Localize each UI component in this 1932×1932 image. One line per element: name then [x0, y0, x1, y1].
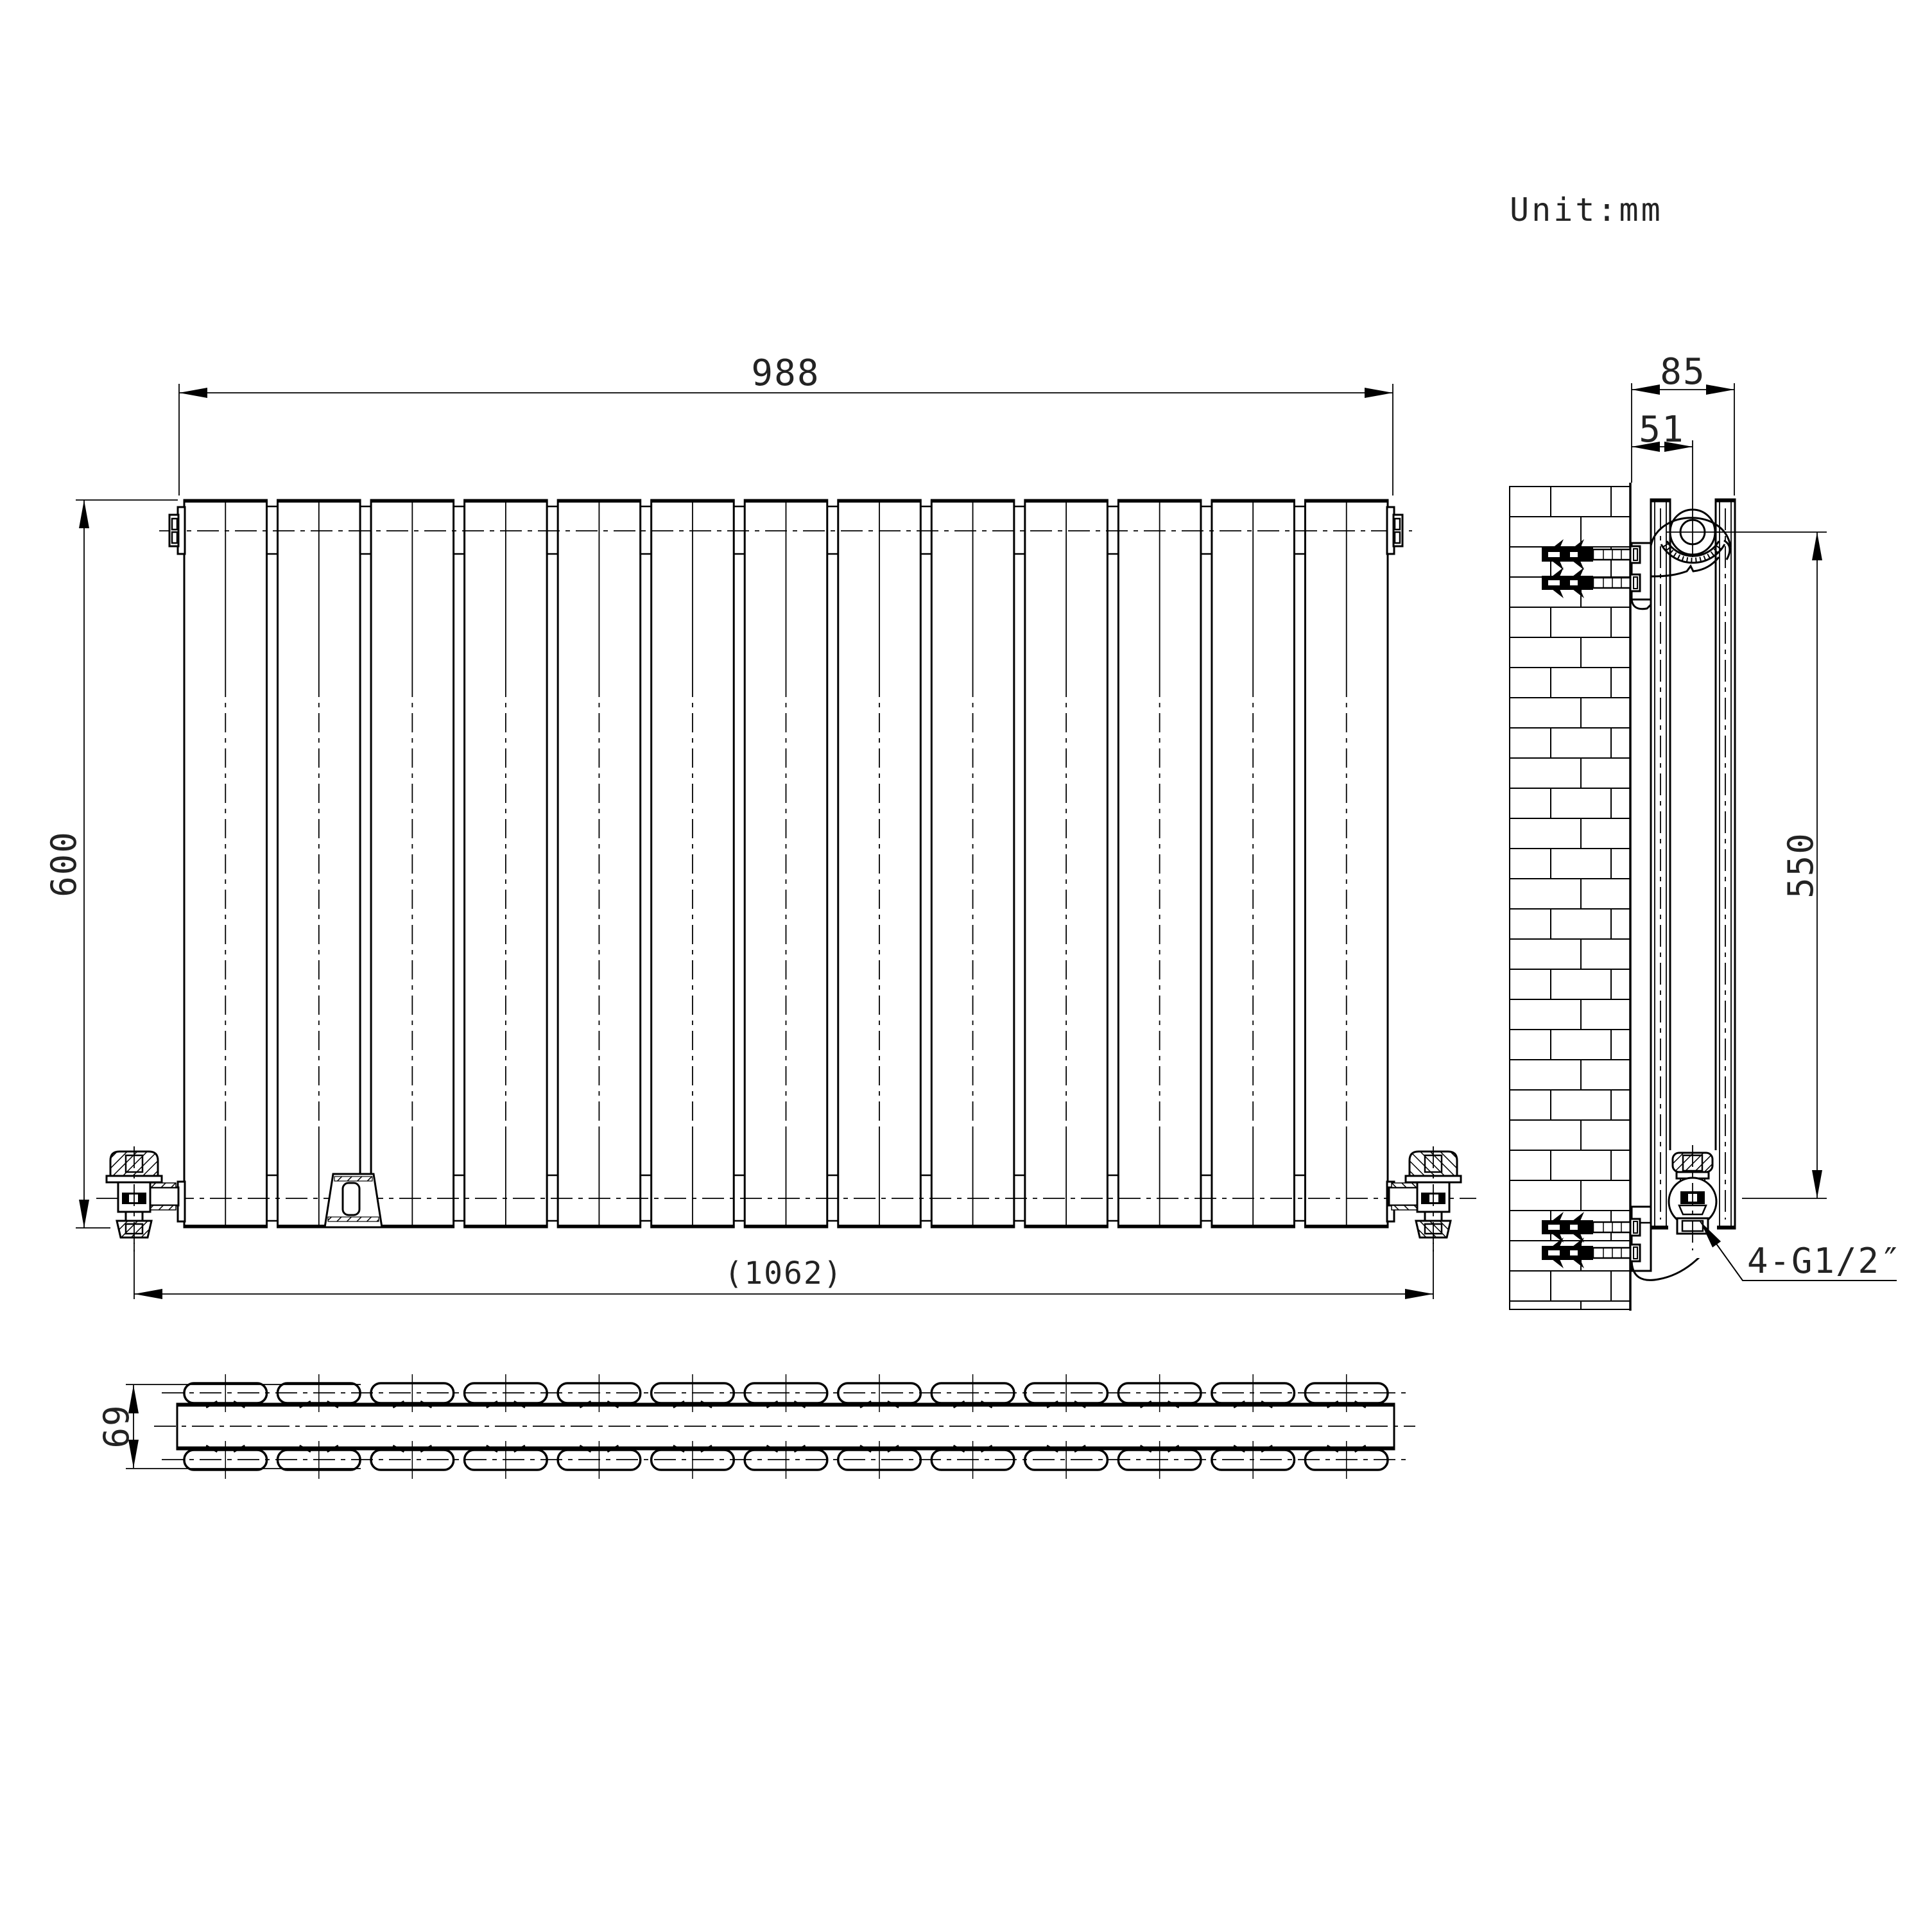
- brick-wall: [1510, 487, 1630, 1309]
- dim-width-label: 988: [751, 352, 820, 394]
- radiator-technical-drawing: 988 600 (1062) 85 51 550 69 4-G1/2″ Unit…: [0, 0, 1932, 1932]
- valve-bottom-left: [107, 1146, 178, 1252]
- collector-joint-top: [547, 506, 558, 554]
- collector-joint-top: [360, 506, 371, 554]
- unit-label: Unit:mm: [1510, 191, 1663, 229]
- collector-joint-top: [454, 506, 465, 554]
- collector-joint-top: [734, 506, 745, 554]
- front-view: [96, 500, 1476, 1252]
- anchor-slot: [1570, 580, 1578, 585]
- dim-depth-overall-label: 85: [1660, 351, 1705, 393]
- front-panels: [184, 500, 1388, 1227]
- anchor-slot: [1548, 552, 1560, 557]
- screw-head-slot: [1634, 1247, 1637, 1259]
- dimension-arrowhead: [1706, 384, 1734, 395]
- collector-joint-top: [267, 506, 278, 554]
- page: { "drawing": { "unit_label": "Unit:mm", …: [0, 0, 1932, 1932]
- dimension-arrowhead: [134, 1289, 162, 1299]
- dim-wall-to-pipe-label: 51: [1639, 409, 1684, 451]
- dimension-arrowhead: [79, 500, 89, 528]
- collector-joint-top: [1014, 506, 1025, 554]
- side-view: [1510, 483, 1735, 1311]
- wall-outline: [1510, 487, 1630, 1309]
- top-view: [154, 1374, 1415, 1479]
- air-vent-plug-right: [1387, 507, 1402, 554]
- dimension-arrowhead: [1632, 384, 1660, 395]
- screw-shaft: [1593, 549, 1630, 560]
- screw-head-slot: [1634, 1221, 1637, 1233]
- dimension-arrowhead: [1812, 532, 1822, 560]
- collector-joint-top: [1201, 506, 1212, 554]
- anchor-slot: [1548, 580, 1560, 585]
- collector-joint-top: [920, 506, 931, 554]
- dimension-arrowhead: [79, 1200, 89, 1228]
- dimension-arrowhead: [1405, 1289, 1433, 1299]
- anchor-slot: [1570, 1250, 1578, 1255]
- screw-shaft: [1593, 578, 1630, 588]
- valve-bottom-right: [1389, 1146, 1461, 1252]
- anchor-slot: [1548, 1225, 1560, 1230]
- dim-depth-label: 69: [96, 1404, 137, 1448]
- dimension-arrowhead: [1365, 388, 1393, 398]
- bracket-front: [325, 1174, 382, 1227]
- dim-height-label: 600: [44, 831, 84, 897]
- side-panels: [1651, 499, 1735, 1229]
- dimension-arrowhead: [1812, 1170, 1822, 1198]
- anchor-slot: [1548, 1250, 1560, 1255]
- dim-overall-width-label: (1062): [724, 1255, 843, 1291]
- anchor-slot: [1570, 1225, 1578, 1230]
- anchor-slot: [1570, 552, 1578, 557]
- screw-shaft: [1593, 1222, 1630, 1232]
- collector-joint-top: [827, 506, 838, 554]
- collector-joint-top: [1294, 506, 1305, 554]
- collector-joint-top: [641, 506, 651, 554]
- air-vent-plug-left: [169, 507, 185, 554]
- dim-pipe-span-label: 550: [1781, 832, 1821, 899]
- screw-head-slot: [1634, 577, 1637, 589]
- screw-shaft: [1593, 1248, 1630, 1258]
- collector-joint-top: [1107, 506, 1118, 554]
- thread-note-label: 4-G1/2″: [1747, 1241, 1902, 1281]
- dimension-arrowhead: [179, 388, 207, 398]
- screw-head-slot: [1634, 549, 1637, 560]
